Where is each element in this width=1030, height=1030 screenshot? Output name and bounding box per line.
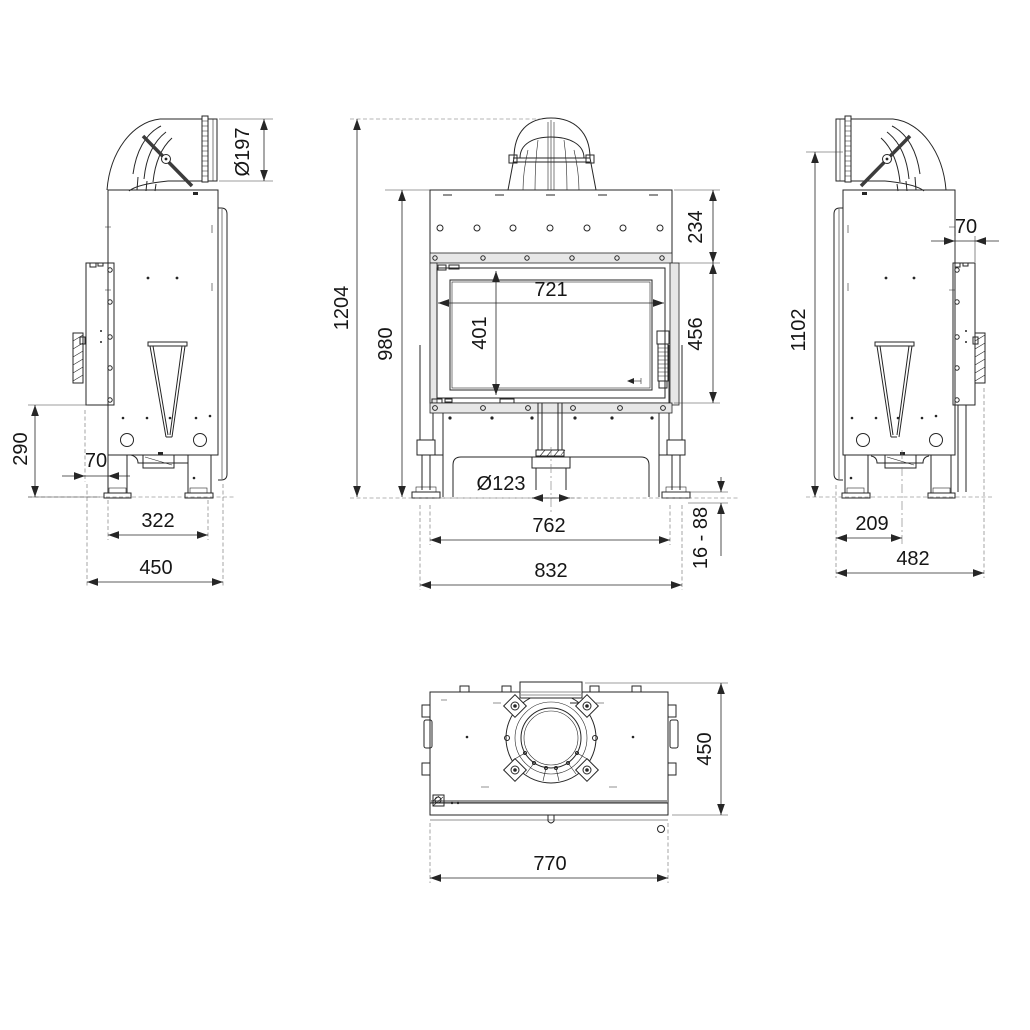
body-top-view [422, 686, 678, 802]
dim-label-rear-panel-depth-right: 70 [955, 216, 977, 238]
dim-foot-spacing-left: 322 [108, 500, 208, 540]
flue-elbow-right [836, 116, 946, 191]
dim-foot-spacing-front: 762 [430, 505, 670, 545]
technical-drawing: Ø197 290 70 322 450 [0, 0, 1030, 1030]
dim-label-foot-spacing-front: 762 [532, 515, 565, 537]
dim-outlet-offset: 209 [836, 485, 902, 578]
dim-rear-panel-depth-right: 70 [931, 216, 999, 262]
dim-overall-depth-left: 450 [87, 484, 223, 587]
dim-door-height: 456 [674, 263, 720, 403]
dim-label-outlet-offset: 209 [855, 513, 888, 535]
door-latch [657, 331, 669, 388]
dim-label-rear-duct-height: 290 [10, 432, 32, 465]
dim-flue-diameter-left: Ø197 [219, 119, 273, 181]
flue-collar-top-view [504, 682, 599, 783]
dim-label-body-height: 980 [375, 327, 397, 360]
dim-label-foot-spacing-left: 322 [141, 510, 174, 532]
dim-hood-height: 234 [674, 190, 720, 263]
base-left-view [28, 452, 235, 498]
front-frame-top-view [430, 795, 668, 833]
body-right-view [834, 190, 955, 480]
body-left-view [105, 190, 227, 480]
dim-label-flue-axis-height: 1102 [788, 308, 810, 351]
front-view: 1204 980 234 456 721 401 Ø123 [331, 118, 740, 590]
dim-label-door-height: 456 [685, 317, 707, 350]
dim-glass-width: 721 [438, 279, 664, 303]
dim-overall-depth-right: 482 [836, 388, 984, 578]
air-lever-arrow-icon [627, 378, 641, 384]
dim-label-overall-depth-top: 450 [694, 732, 716, 765]
dim-label-hood-height: 234 [685, 210, 707, 243]
dim-label-flue-diameter-left: Ø197 [232, 128, 254, 177]
flue-hood [508, 118, 596, 190]
left-side-view: Ø197 290 70 322 450 [10, 116, 273, 587]
rear-legs-front-view [412, 345, 690, 498]
dim-body-width-top: 770 [430, 823, 668, 883]
dim-label-leg-adjustment-range: 16 - 88 [690, 507, 712, 569]
dim-flue-axis-height: 1102 [788, 152, 843, 497]
fireplace-dimension-drawing: Ø197 290 70 322 450 [0, 0, 1030, 1030]
dim-leg-adjustment-range: 16 - 88 [662, 477, 728, 569]
dim-label-body-width-top: 770 [533, 853, 566, 875]
dim-label-glass-height: 401 [469, 316, 491, 349]
rear-panel-right-view [953, 263, 985, 492]
dim-label-glass-width: 721 [534, 279, 567, 301]
top-view: 450 770 [422, 682, 728, 883]
dim-label-overall-width: 832 [534, 560, 567, 582]
dim-label-rear-panel-depth-left: 70 [85, 450, 107, 472]
right-side-view: 1102 70 209 482 [788, 116, 999, 578]
dim-air-inlet-diameter: Ø123 [437, 473, 580, 498]
dim-label-overall-depth-right: 482 [896, 548, 929, 570]
dim-label-overall-height: 1204 [331, 286, 353, 331]
dim-overall-height: 1204 [331, 119, 545, 497]
dim-rear-panel-depth-left: 70 [62, 410, 130, 482]
flue-elbow-left [107, 116, 217, 191]
dim-label-air-inlet-diameter: Ø123 [477, 473, 526, 495]
dim-overall-depth-top: 450 [585, 683, 728, 815]
dim-glass-height: 401 [469, 271, 496, 395]
dim-body-height: 980 [375, 190, 430, 497]
dim-label-overall-depth-left: 450 [139, 557, 172, 579]
